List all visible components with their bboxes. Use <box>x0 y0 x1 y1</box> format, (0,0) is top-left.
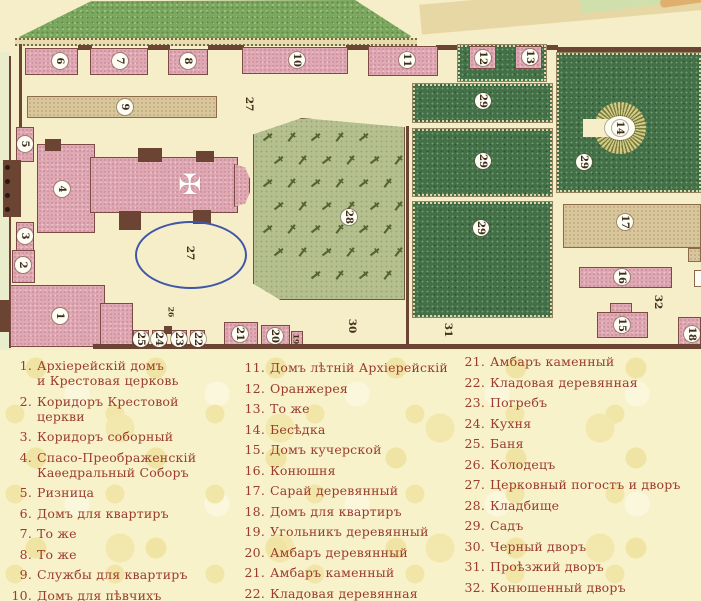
legend-item: 8.То же <box>10 547 238 562</box>
cathedral-portico <box>3 160 21 217</box>
grave-cross-icon: † <box>260 223 274 236</box>
grave-cross-icon: † <box>381 268 394 282</box>
map-label-24: 24 <box>151 331 167 347</box>
map-label-2: 2 <box>15 257 31 273</box>
map-label-1: 1 <box>52 308 68 324</box>
cathedral-nave <box>90 157 238 213</box>
legend-item: 12.Оранжерея <box>243 381 471 396</box>
map-label-5: 5 <box>17 136 33 152</box>
grave-cross-icon: † <box>381 176 394 190</box>
legend-item: 2.Коридоръ Крестовойцеркви <box>10 394 238 424</box>
legend-item: 26.Колодецъ <box>463 457 691 472</box>
legend-item: 10.Домъ для пѣвчихъ <box>10 588 238 601</box>
map-label-16: 16 <box>614 269 630 285</box>
map-label-13: 13 <box>522 49 538 65</box>
grave-cross-icon: † <box>285 176 298 190</box>
legend-item: 32.Конюшенный дворъ <box>463 580 691 595</box>
legend: 1.Архіерейскій домъи Крестовая церковь2.… <box>0 350 701 601</box>
grave-cross-icon: † <box>296 153 309 167</box>
grave-cross-icon: † <box>367 200 381 213</box>
legend-item: 4.Спасо-ПреображенскійКаѳедральный Собор… <box>10 450 238 480</box>
legend-item: 31.Проѣзжий дворъ <box>463 559 691 574</box>
map-label-29: 29 <box>473 220 489 236</box>
building-17-shed <box>563 204 701 248</box>
map-label-18: 18 <box>684 326 700 342</box>
upper-garden <box>15 0 415 42</box>
grave-cross-icon: † <box>271 154 285 167</box>
map-label-19: 19 <box>292 334 301 344</box>
grave-cross-icon: † <box>308 223 322 236</box>
legend-item: 28.Кладбище <box>463 498 691 513</box>
legend-item: 15.Домъ кучерской <box>243 442 471 457</box>
grave-cross-icon: † <box>296 245 309 259</box>
grave-cross-icon: † <box>333 222 346 236</box>
map-label-27: 27 <box>243 97 255 112</box>
map-label-14: 14 <box>612 120 628 136</box>
grave-cross-icon: † <box>356 131 370 144</box>
map-label-7: 7 <box>112 53 128 69</box>
cathedral-cross-icon: ✠ <box>178 171 201 199</box>
legend-item: 25.Баня <box>463 436 691 451</box>
grave-cross-icon: † <box>260 131 274 144</box>
grave-cross-icon: † <box>344 153 357 167</box>
legend-item: 22.Кладовая деревянная <box>243 586 471 601</box>
map-label-26: 26 <box>167 307 176 317</box>
garden-west-wall <box>406 126 409 348</box>
legend-item: 9.Службы для квартиръ <box>10 567 238 582</box>
map-label-20: 20 <box>267 328 283 344</box>
legend-item: 21.Амбаръ каменный <box>463 354 691 369</box>
legend-item: 19.Угольникъ деревянный <box>243 524 471 539</box>
grave-cross-icon: † <box>333 176 346 190</box>
grave-cross-icon: † <box>367 246 381 259</box>
legend-item: 22.Кладовая деревянная <box>463 375 691 390</box>
grave-cross-icon: † <box>392 199 405 213</box>
map-label-3: 3 <box>17 228 33 244</box>
grave-cross-icon: † <box>319 200 333 213</box>
grave-cross-icon: † <box>356 177 370 190</box>
legend-item: 14.Бесѣдка <box>243 422 471 437</box>
map-label-31: 31 <box>442 323 454 338</box>
legend-item: 11.Домъ лѣтній Архіерейскій <box>243 360 471 375</box>
well-26 <box>164 326 172 334</box>
grave-cross-icon: † <box>296 199 309 213</box>
legend-item: 1.Архіерейскій домъи Крестовая церковь <box>10 358 238 388</box>
grave-cross-icon: † <box>392 245 405 259</box>
grave-cross-icon: † <box>392 153 405 167</box>
legend-item: 24.Кухня <box>463 416 691 431</box>
grave-cross-icon: † <box>344 245 357 259</box>
map-label-9: 9 <box>117 99 133 115</box>
legend-item: 18.Домъ для квартиръ <box>243 504 471 519</box>
map-label-23: 23 <box>171 331 187 347</box>
map-label-29: 29 <box>576 154 592 170</box>
map-label-10: 10 <box>289 52 305 68</box>
map-label-6: 6 <box>52 53 68 69</box>
legend-column-3: 21.Амбаръ каменный22.Кладовая деревянная… <box>463 354 691 601</box>
cemetery-28: ††††††††††††††††††††††††††††††††††††††† <box>253 118 405 300</box>
grave-cross-icon: † <box>285 130 298 144</box>
legend-item: 21.Амбаръ каменный <box>243 565 471 580</box>
map-label-29: 29 <box>475 153 491 169</box>
building-17-wing <box>688 248 701 262</box>
map-label-30: 30 <box>346 319 358 334</box>
legend-item: 30.Черный дворъ <box>463 539 691 554</box>
map-label-32: 32 <box>652 295 664 310</box>
grave-cross-icon: † <box>356 223 370 236</box>
map-label-8: 8 <box>180 53 196 69</box>
legend-item: 16.Конюшня <box>243 463 471 478</box>
grave-cross-icon: † <box>319 246 333 259</box>
map-label-21: 21 <box>232 326 248 342</box>
wall-segment <box>346 45 370 50</box>
grave-cross-icon: † <box>381 222 394 236</box>
map-label-27: 27 <box>184 246 196 261</box>
wall-segment <box>148 45 170 50</box>
map-label-25: 25 <box>133 331 149 347</box>
map-label-11: 11 <box>399 52 415 68</box>
grave-cross-icon: † <box>271 200 285 213</box>
cathedral-chapel <box>45 139 61 151</box>
grave-cross-icon: † <box>356 269 370 282</box>
grave-cross-icon: † <box>260 177 274 190</box>
wall-segment <box>436 45 460 50</box>
grave-cross-icon: † <box>308 131 322 144</box>
cathedral-apse <box>234 164 250 207</box>
road-upper-right <box>419 0 701 35</box>
grave-cross-icon: † <box>285 222 298 236</box>
legend-item: 13.То же <box>243 401 471 416</box>
legend-item: 29.Садъ <box>463 518 691 533</box>
plan-screenshot: ✠ ††††††††††††††††††††††††††††††††††††††… <box>0 0 701 601</box>
legend-item: 6.Домъ для квартиръ <box>10 506 238 521</box>
grave-cross-icon: † <box>333 268 346 282</box>
legend-item: 27.Церковный погостъ и дворъ <box>463 477 691 492</box>
grave-cross-icon: † <box>319 154 333 167</box>
map-label-22: 22 <box>190 331 206 347</box>
legend-item: 7.То же <box>10 526 238 541</box>
grave-cross-icon: † <box>333 130 346 144</box>
legend-item: 23.Погребъ <box>463 395 691 410</box>
map-label-4: 4 <box>54 181 70 197</box>
estate-map: ✠ ††††††††††††††††††††††††††††††††††††††… <box>0 0 701 350</box>
map-label-15: 15 <box>614 317 630 333</box>
grave-cross-icon: † <box>367 154 381 167</box>
map-label-17: 17 <box>617 214 633 230</box>
cut-label-box <box>694 270 701 287</box>
legend-column-1: 1.Архіерейскій домъи Крестовая церковь2.… <box>10 358 238 601</box>
cathedral-chapel <box>119 211 141 230</box>
legend-item: 20.Амбаръ деревянный <box>243 545 471 560</box>
wall-segment <box>544 45 558 50</box>
cathedral-chapel <box>196 151 214 162</box>
grave-cross-icon: † <box>271 246 285 259</box>
legend-item: 17.Сарай деревянный <box>243 483 471 498</box>
map-label-12: 12 <box>475 50 491 66</box>
cathedral-chapel <box>138 148 162 162</box>
map-label-29: 29 <box>475 93 491 109</box>
grave-cross-icon: † <box>308 269 322 282</box>
legend-item: 3.Коридоръ соборный <box>10 429 238 444</box>
map-label-28: 28 <box>341 209 357 225</box>
building-1-wing <box>100 303 133 347</box>
grave-cross-icon: † <box>308 177 322 190</box>
wall-segment <box>208 45 244 50</box>
legend-column-2: 11.Домъ лѣтній Архіерейскій12.Оранжерея1… <box>243 360 471 601</box>
legend-item: 5.Ризница <box>10 485 238 500</box>
